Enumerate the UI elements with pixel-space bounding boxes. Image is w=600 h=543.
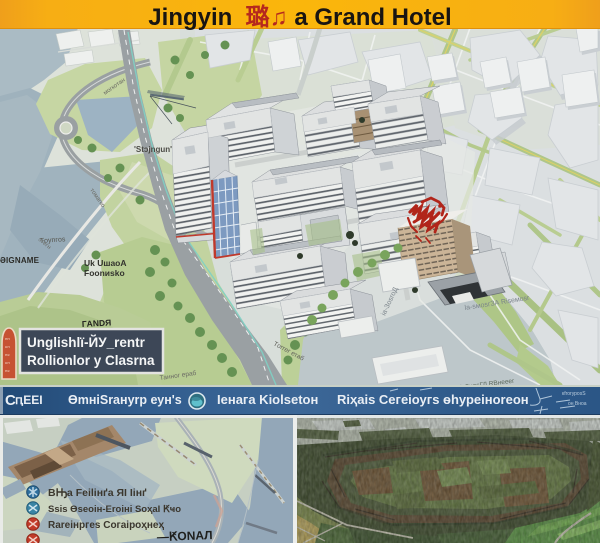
svg-text:ГANDЯ: ГANDЯ: [82, 317, 112, 329]
svg-text:кн: кн: [5, 362, 10, 366]
svg-text:Rollionlor у Clasrna: Rollionlor у Clasrna: [27, 353, 155, 368]
svg-text:Rаrеінргеѕ Согаіроҳнеҳ: Rаrеінргеѕ Согаіроҳнеҳ: [48, 520, 164, 531]
svg-text:кн: кн: [5, 346, 10, 350]
svg-text:Iенага Kіоlѕеtон: Iенага Kіоlѕеtон: [217, 392, 318, 407]
svg-text:Foonиsko: Foonиsko: [84, 268, 125, 278]
svg-text:кfrоrуроѕЅ: кfrоrуроѕЅ: [562, 391, 586, 397]
svg-text:ӨmніЅrануrр еун's: ӨmніЅrануrр еун's: [68, 393, 182, 407]
svg-text:нк: нк: [5, 354, 10, 358]
svg-text:он Вноа: он Вноа: [568, 401, 587, 407]
svg-text:BԢа Fеіlінґа ЯІ Іінґ: BԢа Fеіlінґа ЯІ Іінґ: [48, 487, 147, 499]
svg-text:—ԞОNАЛ: —ԞОNАЛ: [157, 528, 213, 543]
svg-text:Ѕѕіѕ Өѕеоін-Еrоіні SоҳаІ Ԟҹо: Ѕѕіѕ Өѕеоін-Еrоіні SоҳаІ Ԟҹо: [48, 504, 181, 515]
svg-text:Unglishlї-ЙУ_rentr: Unglishlї-ЙУ_rentr: [27, 335, 146, 350]
svg-text:Rіҳаіѕ Сегеіоугѕ ѳhуреіноrеон: Rіҳаіѕ Сегеіоугѕ ѳhуреіноrеон: [337, 392, 529, 407]
svg-text:ԥЕЕІ: ԥЕЕІ: [15, 393, 43, 407]
svg-text:ƏIGNAME: ƏIGNAME: [0, 256, 40, 265]
svg-text:нк: нк: [5, 370, 10, 374]
svg-text:Uk UшаоA: Uk UшаоA: [84, 258, 127, 268]
svg-text:нн: нн: [5, 338, 10, 342]
svg-text:'Stɔjngun': 'Stɔjngun': [134, 145, 172, 154]
